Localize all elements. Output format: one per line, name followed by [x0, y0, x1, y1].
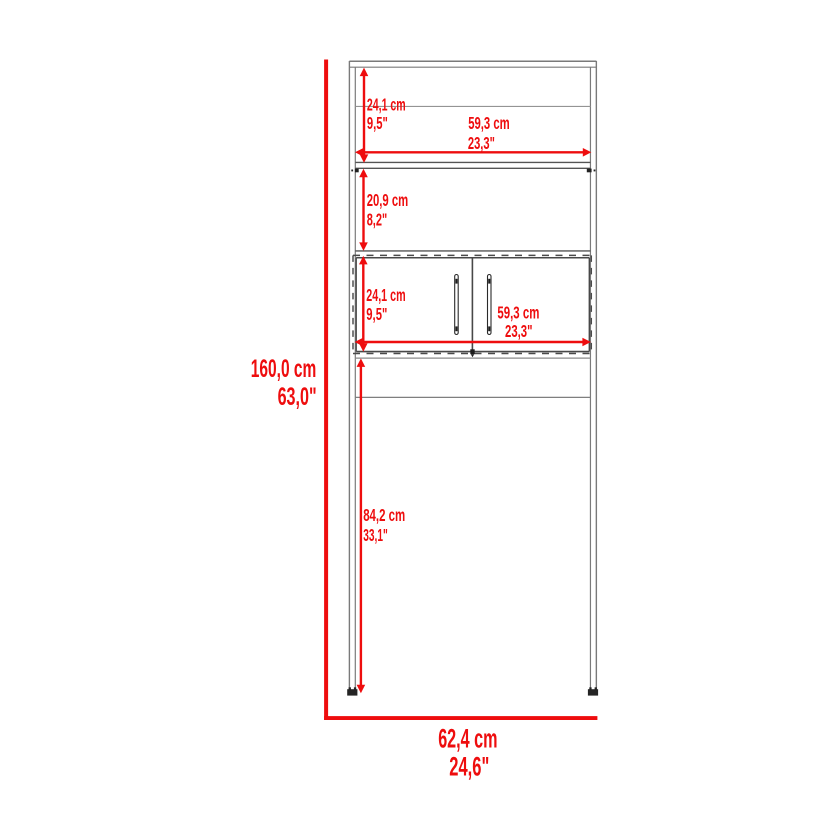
svg-text:63,0": 63,0": [278, 383, 317, 411]
svg-text:8,2": 8,2": [367, 210, 388, 230]
svg-text:9,5": 9,5": [367, 113, 388, 133]
svg-text:59,3 cm: 59,3 cm: [468, 113, 510, 133]
svg-text:59,3 cm: 59,3 cm: [497, 303, 539, 323]
svg-text:20,9 cm: 20,9 cm: [367, 190, 409, 210]
svg-text:24,6": 24,6": [449, 752, 489, 782]
svg-text:84,2 cm: 84,2 cm: [363, 505, 405, 525]
svg-text:24,1 cm: 24,1 cm: [367, 95, 406, 115]
svg-text:160,0 cm: 160,0 cm: [251, 355, 316, 383]
svg-text:9,5": 9,5": [366, 304, 387, 324]
svg-text:23,3": 23,3": [468, 133, 495, 153]
svg-text:62,4 cm: 62,4 cm: [438, 723, 497, 753]
svg-text:23,3": 23,3": [505, 321, 533, 341]
svg-text:33,1": 33,1": [363, 525, 388, 545]
svg-text:24,1 cm: 24,1 cm: [366, 285, 405, 305]
